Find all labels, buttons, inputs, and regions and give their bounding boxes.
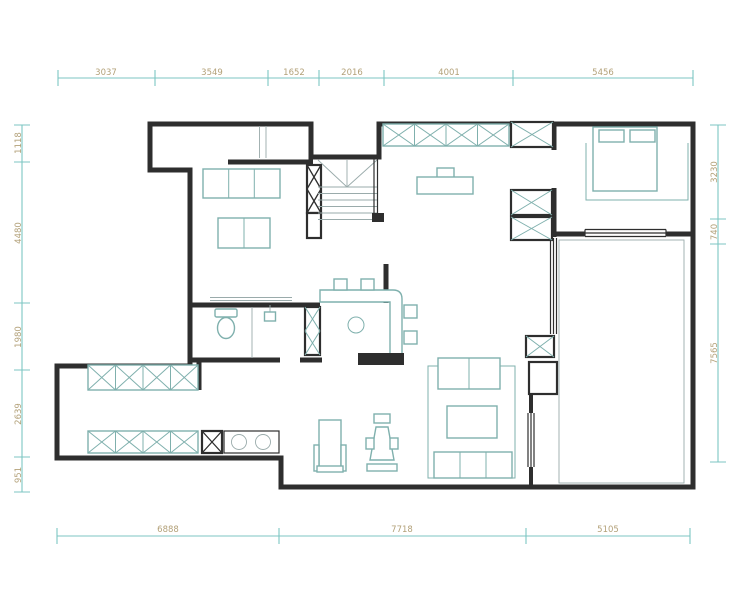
dim-label-left-2: 4480 — [14, 222, 24, 244]
cabinet-upper-left — [203, 169, 280, 198]
loveseat — [438, 358, 500, 389]
floor-plan-canvas: 3037 3549 1652 2016 4001 5456 6888 7718 … — [0, 0, 740, 600]
dim-label-top-3: 1652 — [283, 68, 305, 78]
dim-label-top-5: 4001 — [438, 68, 460, 78]
window-right-middle — [551, 238, 557, 334]
dim-label-bottom-1: 6888 — [157, 525, 179, 535]
dimension-line-top: 3037 3549 1652 2016 4001 5456 — [58, 68, 693, 86]
kitchen-island — [320, 279, 417, 356]
toilet — [215, 309, 237, 339]
dim-label-left-3: 1980 — [14, 326, 24, 348]
dim-label-right-2: 740 — [710, 224, 720, 240]
dim-label-bottom-2: 7718 — [391, 525, 413, 535]
column-stairs — [307, 165, 321, 238]
dimension-line-left: 1118 4480 1980 2639 951 — [14, 125, 30, 492]
wardrobe-corridor-bottom — [88, 431, 198, 453]
bed-top-right — [586, 127, 688, 200]
table-upper-left — [218, 218, 270, 248]
column-corridor — [202, 431, 222, 453]
tv-cabinet — [358, 353, 404, 365]
wardrobe-corridor-top — [88, 365, 198, 390]
dim-label-right-3: 7565 — [710, 342, 720, 364]
coffee-table — [447, 406, 497, 438]
dim-label-left-4: 2639 — [14, 403, 24, 425]
cabinet-hall-low — [511, 217, 552, 240]
dim-label-left-5: 951 — [14, 467, 24, 483]
shaft-box — [529, 362, 557, 394]
dim-label-top-6: 5456 — [592, 68, 614, 78]
dim-label-top-1: 3037 — [95, 68, 117, 78]
sideboard-lines — [210, 298, 292, 301]
column-bathroom — [305, 307, 320, 355]
desk-study — [417, 168, 473, 194]
terrace-room-outline — [559, 240, 684, 483]
dimension-line-bottom: 6888 7718 5105 — [57, 525, 690, 544]
dim-label-top-4: 2016 — [341, 68, 363, 78]
laundry-counter — [224, 431, 279, 453]
exercise-machine — [366, 414, 398, 471]
window-bedroom-top — [585, 230, 666, 237]
cabinet-right-middle — [526, 336, 554, 357]
window-right-lower — [528, 413, 534, 467]
cabinet-hall-mid — [511, 190, 552, 215]
cabinet-hall-top — [511, 122, 553, 147]
dim-label-top-2: 3549 — [201, 68, 223, 78]
dim-label-bottom-3: 5105 — [597, 525, 619, 535]
wardrobe-study — [383, 124, 509, 146]
dim-label-left-1: 1118 — [14, 132, 24, 154]
sofa — [434, 452, 512, 478]
dimension-line-right: 3230 740 7565 — [710, 125, 726, 462]
hall-door-lines — [260, 126, 267, 158]
treadmill — [314, 420, 346, 472]
dim-label-right-1: 3230 — [710, 161, 720, 183]
staircase — [318, 159, 384, 222]
